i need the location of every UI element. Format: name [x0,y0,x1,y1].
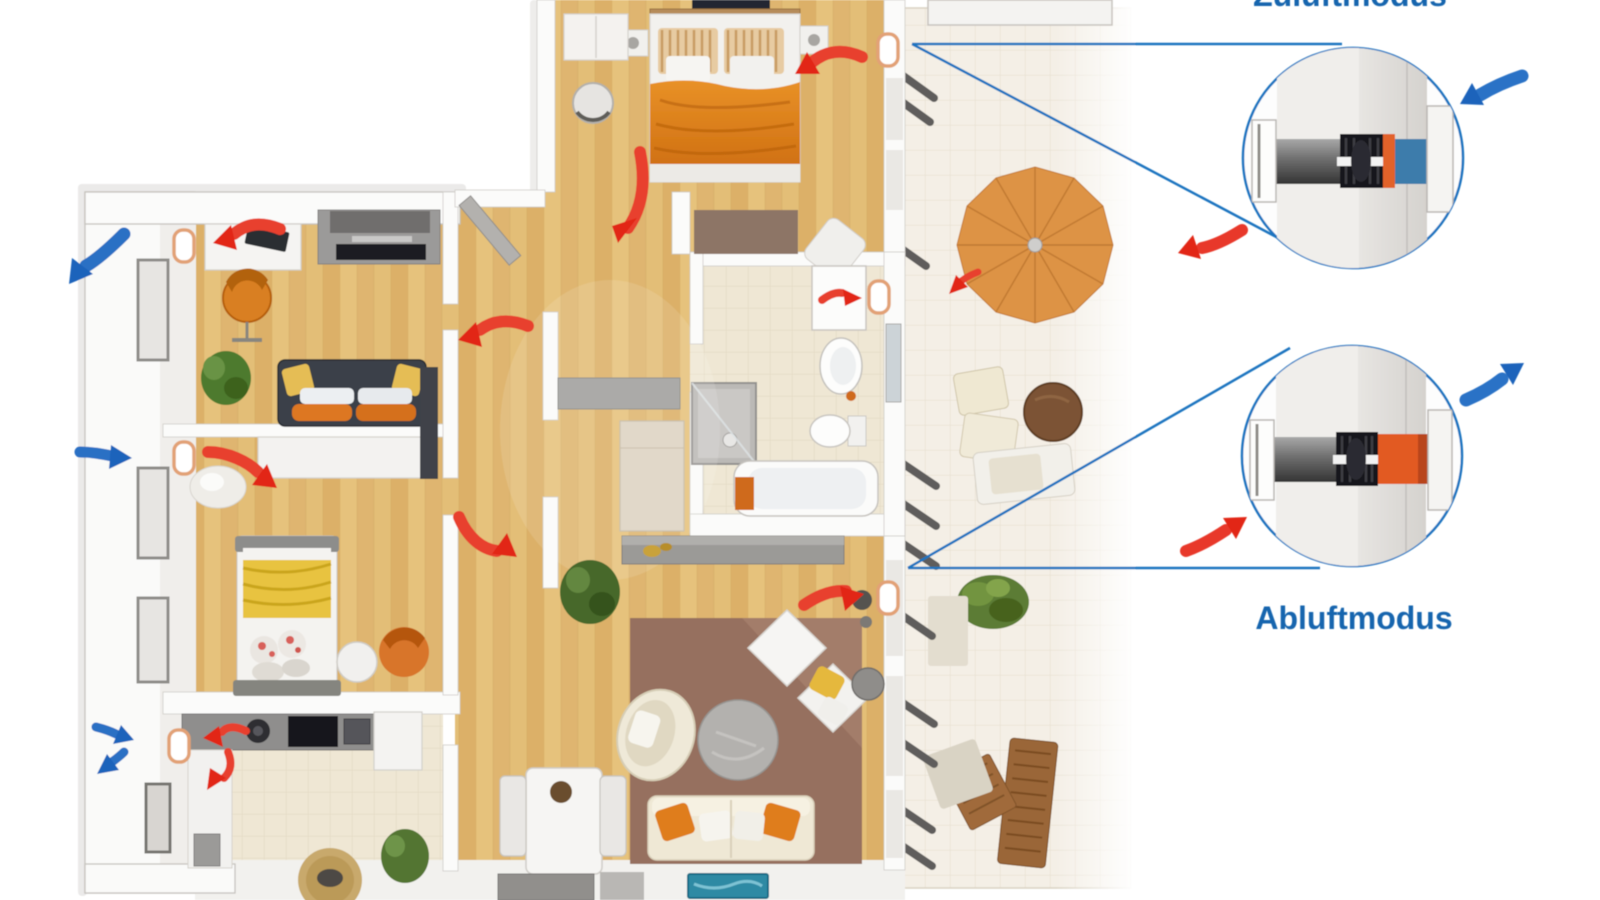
svg-text:Abluftmodus: Abluftmodus [1255,600,1452,636]
svg-text:Zuluftmodus: Zuluftmodus [1253,0,1447,13]
